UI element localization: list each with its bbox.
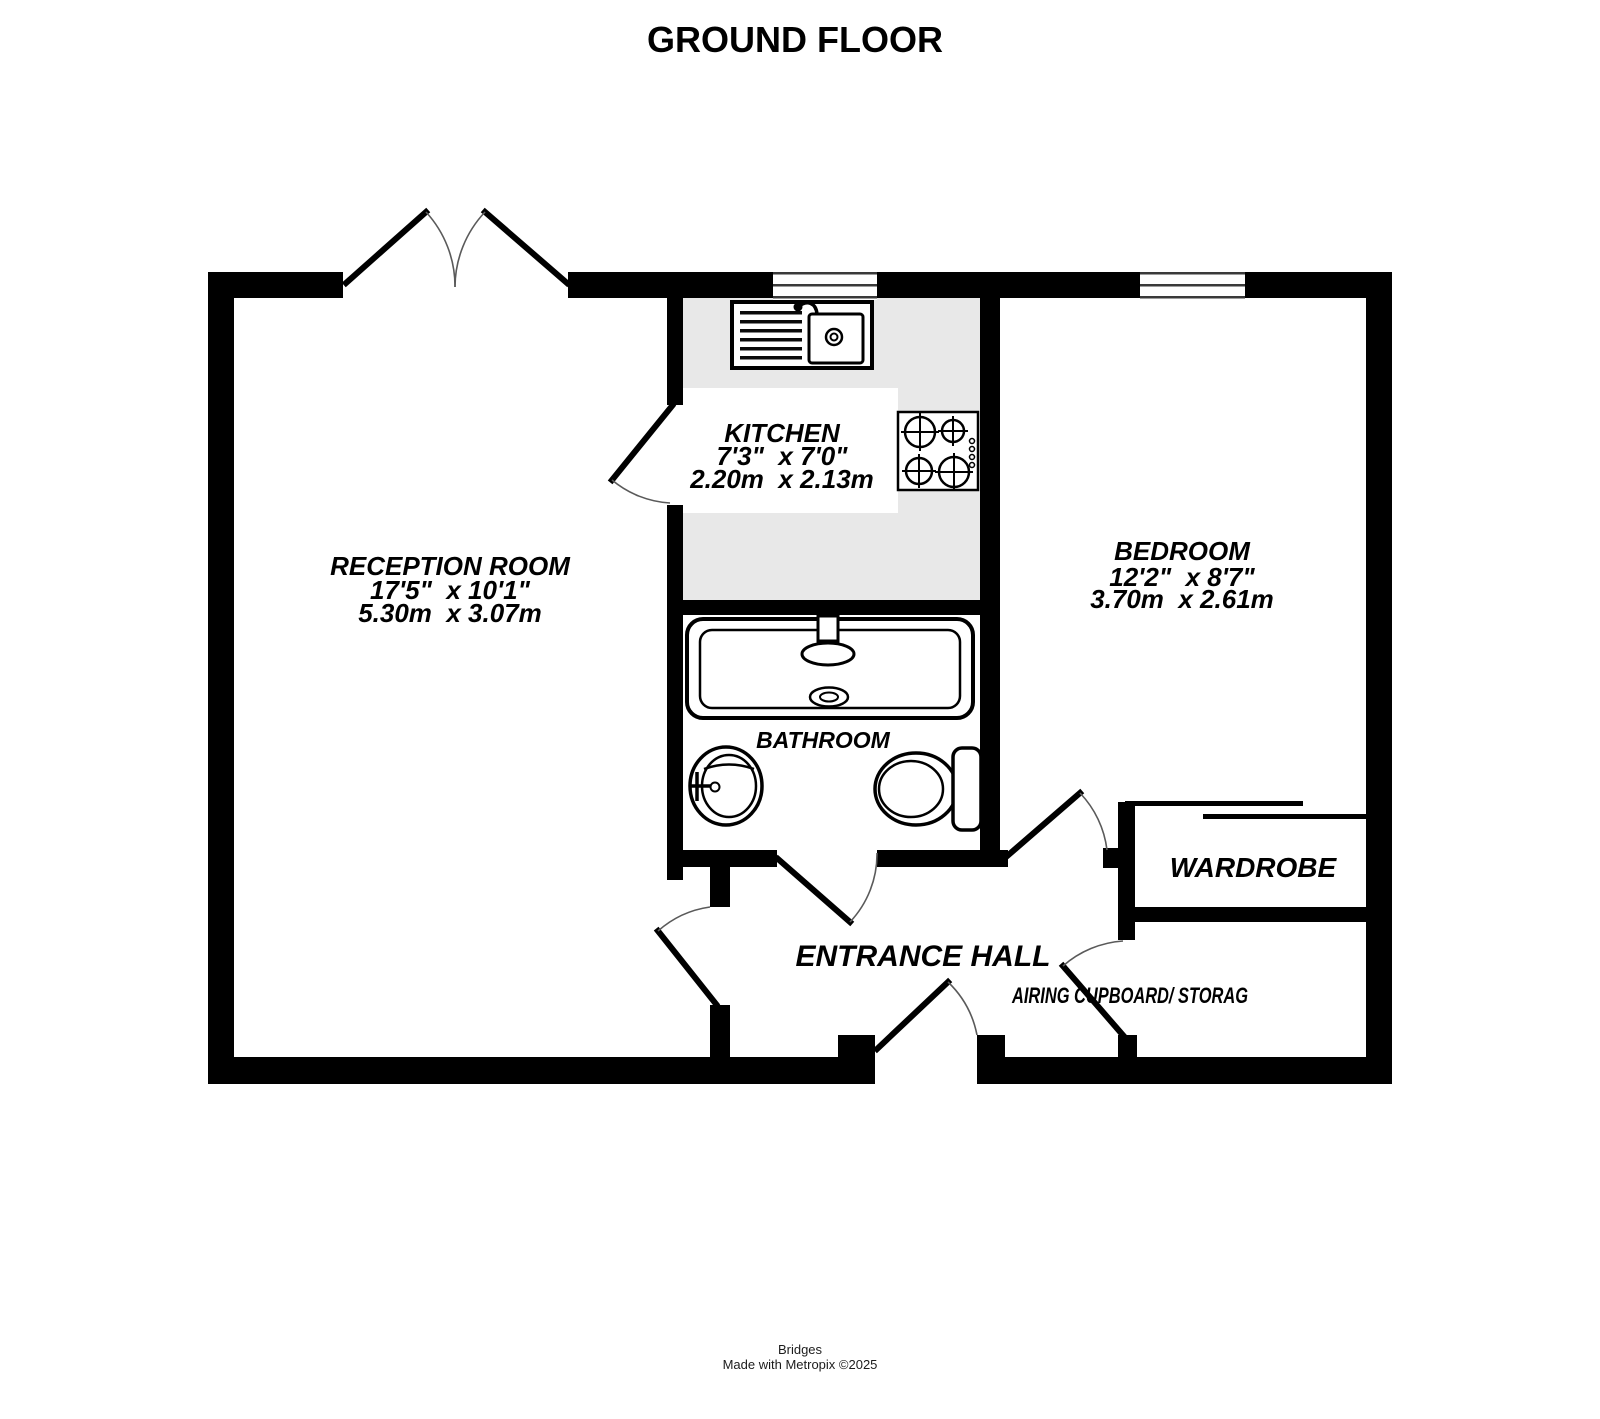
toilet-icon bbox=[875, 748, 981, 830]
bedroom-window bbox=[1140, 270, 1245, 300]
kitchen-door bbox=[612, 406, 672, 503]
reception-door bbox=[658, 907, 716, 1004]
room-label-airing-cupboard: AIRING CUPBOARD/ STORAG bbox=[1011, 983, 1248, 1008]
room-dims-reception-metric: 5.30m x 3.07m bbox=[358, 598, 542, 628]
room-label-bathroom: BATHROOM bbox=[756, 727, 891, 753]
room-dims-bedroom-metric: 3.70m x 2.61m bbox=[1090, 584, 1274, 614]
hob-icon bbox=[898, 412, 978, 491]
room-dims-kitchen-metric: 2.20m x 2.13m bbox=[689, 464, 874, 494]
floor-plan-page: GROUND FLOOR bbox=[0, 0, 1600, 1419]
front-door bbox=[877, 982, 977, 1049]
floor-title: GROUND FLOOR bbox=[647, 19, 943, 60]
wardrobe-rail-icon bbox=[1125, 801, 1367, 819]
kitchen-sink-icon bbox=[732, 302, 872, 368]
kitchen-window bbox=[773, 270, 877, 300]
wash-basin-icon bbox=[690, 747, 762, 825]
bedroom-door bbox=[1006, 793, 1107, 857]
footer-credit: Made with Metropix ©2025 bbox=[723, 1357, 878, 1372]
room-label-entrance-hall: ENTRANCE HALL bbox=[796, 940, 1051, 973]
floor-plan: GROUND FLOOR bbox=[0, 0, 1600, 1419]
bathroom-door bbox=[778, 853, 877, 922]
footer-brand: Bridges bbox=[778, 1342, 823, 1357]
french-doors bbox=[346, 212, 567, 287]
bathtub-icon bbox=[687, 616, 973, 718]
room-label-wardrobe: WARDROBE bbox=[1170, 852, 1338, 883]
